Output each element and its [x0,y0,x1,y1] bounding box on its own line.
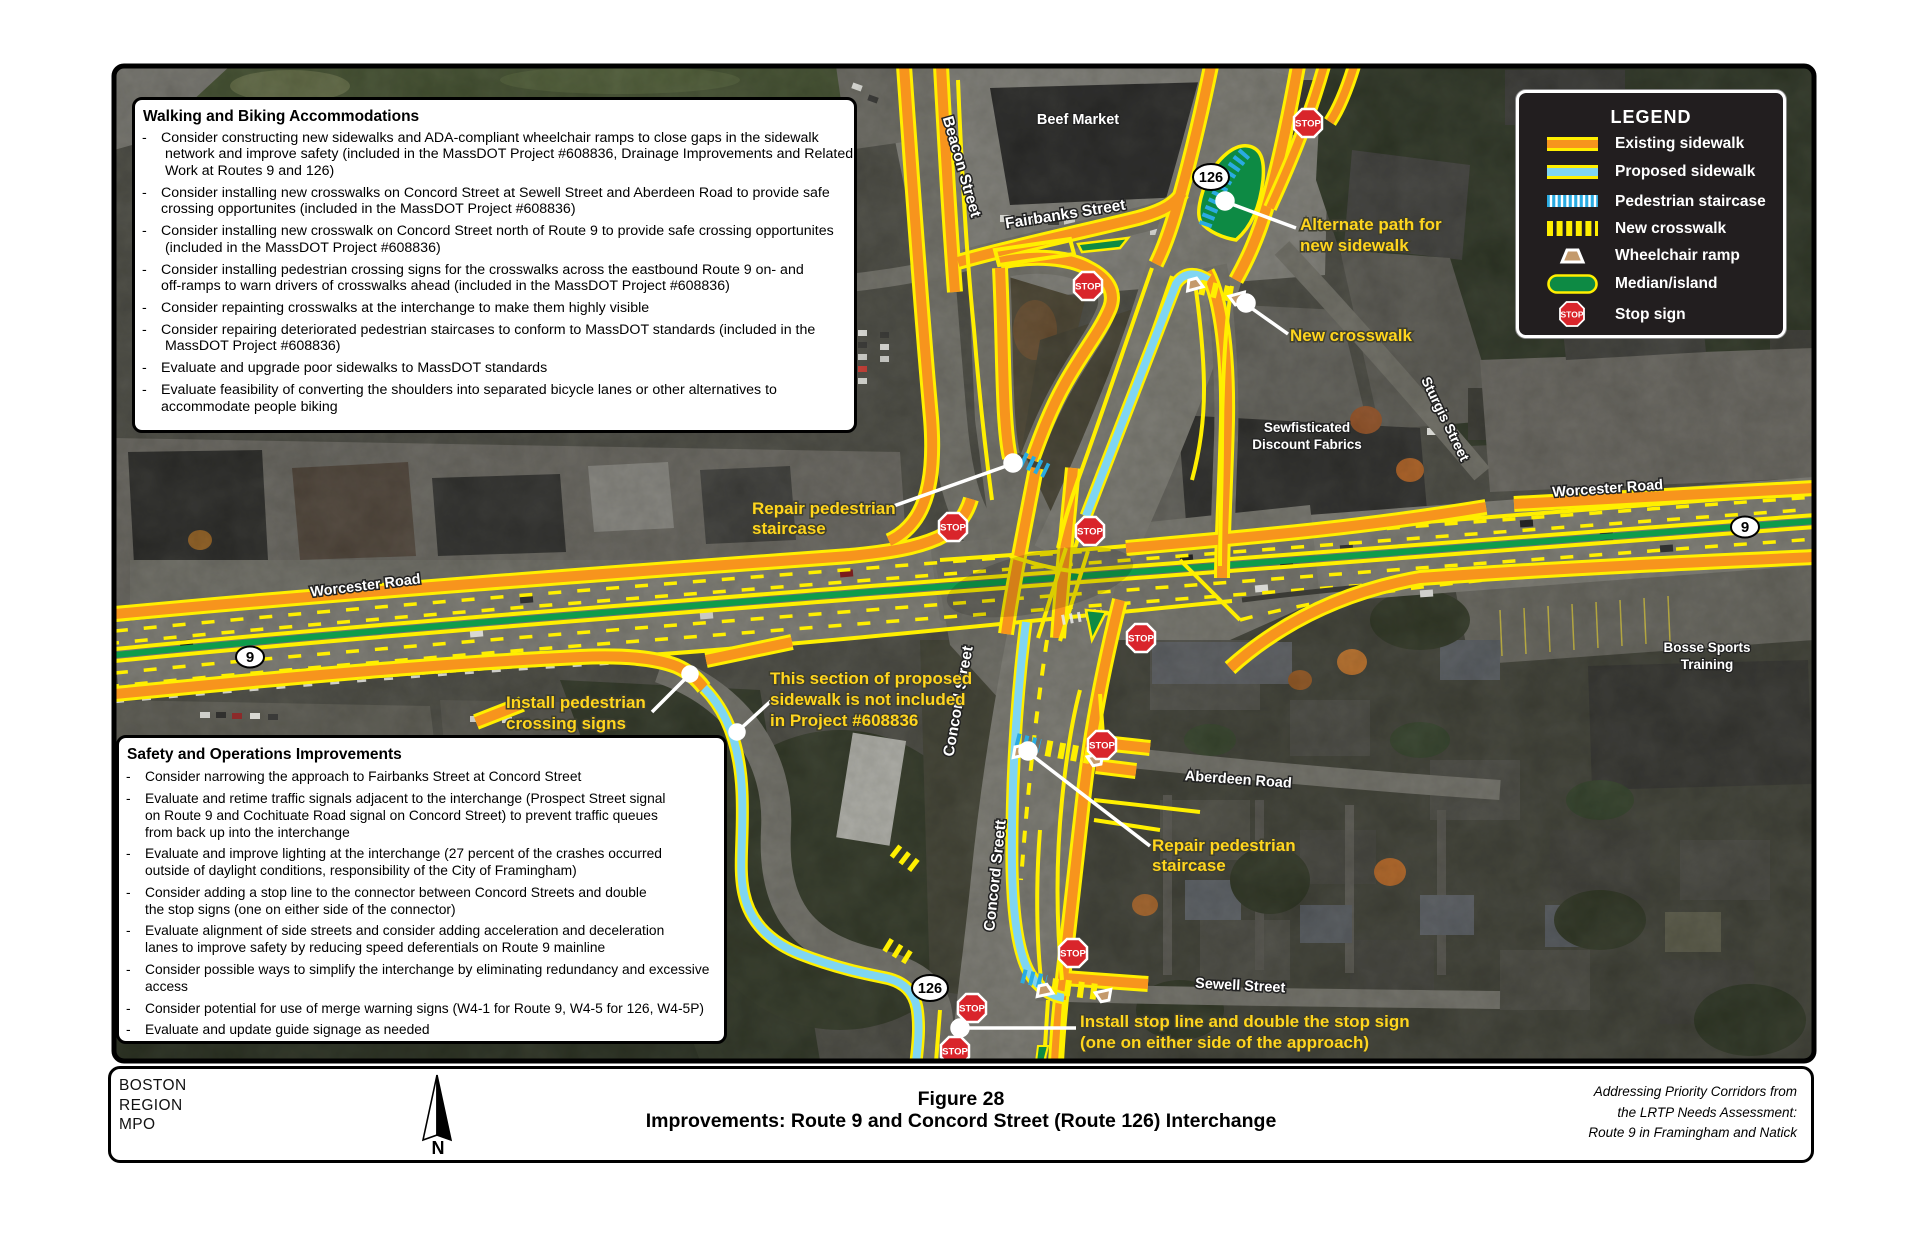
svg-text:STOP: STOP [942,1047,968,1058]
svg-text:126: 126 [1199,170,1223,186]
svg-text:sidewalk is not included: sidewalk is not included [770,690,966,709]
svg-text:STOP: STOP [1561,310,1584,320]
svg-text:STOP: STOP [1075,282,1101,293]
svg-text:Training: Training [1681,657,1734,672]
svg-text:Sewfisticated: Sewfisticated [1264,420,1350,435]
svg-text:(one on either side of the app: (one on either side of the approach) [1080,1033,1369,1052]
svg-text:STOP: STOP [959,1004,985,1015]
svg-text:Discount Fabrics: Discount Fabrics [1252,437,1362,452]
svg-text:staircase: staircase [1152,856,1226,875]
svg-text:STOP: STOP [1295,119,1321,130]
svg-text:STOP: STOP [1089,741,1115,752]
svg-text:This section of proposed: This section of proposed [770,669,972,688]
svg-text:New crosswalk: New crosswalk [1290,326,1412,345]
svg-text:9: 9 [246,649,254,666]
svg-text:STOP: STOP [940,523,966,534]
svg-text:staircase: staircase [752,519,826,538]
svg-text:new sidewalk: new sidewalk [1300,236,1409,255]
svg-text:STOP: STOP [1128,634,1154,645]
svg-text:Install pedestrian: Install pedestrian [506,693,646,712]
svg-text:Bosse Sports: Bosse Sports [1663,640,1750,655]
svg-text:9: 9 [1741,519,1749,536]
svg-text:crossing signs: crossing signs [506,714,626,733]
svg-text:STOP: STOP [1060,949,1086,960]
svg-text:126: 126 [918,981,942,997]
svg-text:Repair pedestrian: Repair pedestrian [1152,836,1296,855]
svg-text:Alternate path for: Alternate path for [1300,215,1442,234]
svg-text:Repair pedestrian: Repair pedestrian [752,499,896,518]
svg-text:STOP: STOP [1077,527,1103,538]
svg-text:Install stop line and double t: Install stop line and double the stop si… [1080,1012,1410,1031]
svg-text:in Project #608836: in Project #608836 [770,711,918,730]
svg-text:Beef Market: Beef Market [1037,112,1119,128]
svg-text:N: N [432,1138,445,1157]
